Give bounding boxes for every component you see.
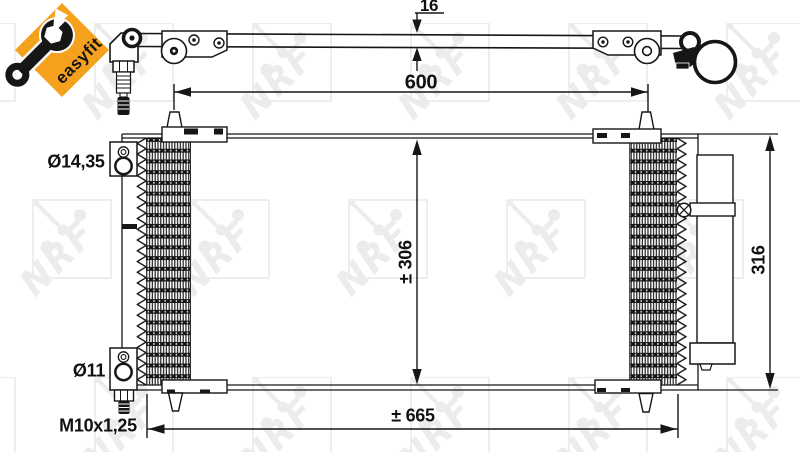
outlet-port-block xyxy=(110,348,137,414)
mount-bracket-top-right xyxy=(593,112,661,143)
label-thread-size: M10x1,25 xyxy=(59,416,137,437)
core-serrated-edge-right xyxy=(677,138,687,385)
dim-label-core-height: ± 306 xyxy=(396,240,417,283)
core-band-right xyxy=(630,138,677,385)
dim-label-pipe-length: 600 xyxy=(405,72,437,95)
dimension-16 xyxy=(412,13,444,71)
core-serrated-edge-left xyxy=(137,138,147,385)
label-port-top-diameter: Ø14,35 xyxy=(47,152,104,173)
pipe-bracket-right xyxy=(593,31,661,64)
pipe-fitting-right xyxy=(673,33,736,83)
side-tab-left xyxy=(122,224,137,229)
dim-label-pipe-thickness: 16 xyxy=(420,0,438,16)
condenser-technical-drawing: NRF xyxy=(0,0,800,452)
dim-label-total-width: ± 665 xyxy=(391,406,434,427)
pipe-bracket-left xyxy=(162,31,228,64)
mount-bracket-bottom-left xyxy=(162,380,227,411)
mount-bracket-top-left xyxy=(162,112,227,142)
dim-label-total-height: 316 xyxy=(749,245,770,274)
core-band-left xyxy=(146,138,190,385)
label-port-bottom-diameter: Ø11 xyxy=(73,361,105,382)
condenser-body xyxy=(110,112,778,414)
inlet-port-block xyxy=(110,142,137,176)
mount-bracket-bottom-right xyxy=(595,380,661,412)
